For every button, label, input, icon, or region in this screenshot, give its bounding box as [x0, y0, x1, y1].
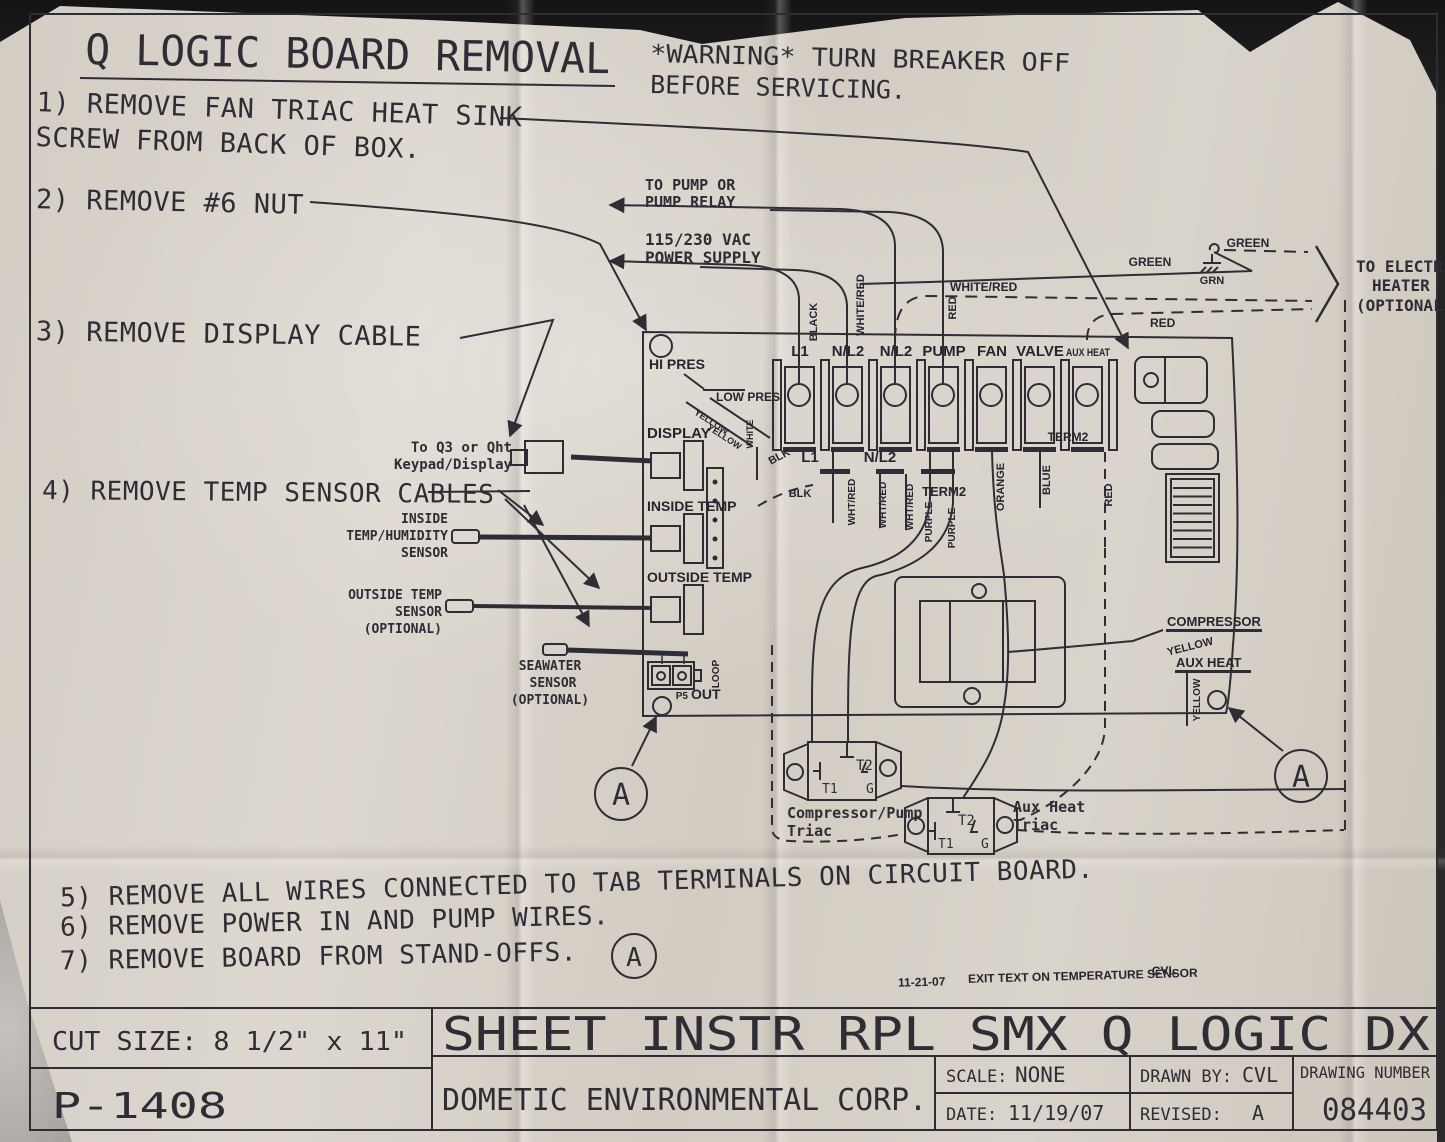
cut-size: CUT SIZE: 8 1/2" x 11" [52, 1027, 407, 1057]
photo-of-instruction-sheet: Q LOGIC BOARD REMOVAL *WARNING* TURN BRE… [0, 0, 1445, 1142]
heat-sink-components [1135, 357, 1219, 562]
revised-label: REVISED: [1140, 1105, 1222, 1125]
aux-heat-yellow-label: YELLOW [1192, 678, 1203, 721]
outside-sensor-cable [446, 600, 652, 612]
drawing-number-value: 084403 [1322, 1093, 1427, 1128]
note-date: 11-21-07 [898, 974, 946, 989]
whitered-wire-label: WHITE/RED [855, 274, 867, 336]
term2-label: TERM2 [1048, 430, 1089, 444]
revision-note: 11-21-07 EXIT TEXT ON TEMPERATURE SENSOR… [898, 963, 1199, 990]
out-label: OUT [691, 686, 721, 702]
step-4: 4) REMOVE TEMP SENSOR CABLES [42, 475, 495, 512]
outside-temp-label: OUTSIDE TEMP [647, 569, 752, 585]
outside-sensor-line3: (OPTIONAL) [364, 622, 442, 637]
step-3: 3) REMOVE DISPLAY CABLE [36, 315, 422, 355]
tab-terminal-labels: BLK L1 N/L2 BLK TERM2 WHT/RED WHT/RED WH… [767, 446, 1115, 548]
date-value: 11/19/07 [1008, 1101, 1104, 1125]
power-supply-line1: 115/230 VAC [645, 230, 751, 249]
whtred-label-1: WHT/RED [847, 479, 858, 526]
inside-temp-label: INSIDE TEMP [647, 498, 736, 514]
inside-sensor-line3: SENSOR [401, 546, 448, 561]
board-connectors [651, 441, 723, 634]
compressor-pump-triac [784, 716, 901, 800]
warning-line2: BEFORE SERVICING. [650, 70, 906, 105]
display-label: DISPLAY [647, 425, 711, 442]
tab-l1-label: L1 [801, 449, 819, 466]
aux-triac-t2: T2 [958, 813, 975, 829]
comp-triac-t1: T1 [822, 782, 838, 797]
seawater-sensor-line1: SEAWATER [519, 659, 582, 674]
electric-heater-line2: HEATER [1372, 276, 1430, 295]
aux-triac-g: G [981, 837, 989, 852]
white-label: WHITE [745, 420, 755, 449]
electric-heater-line3: (OPTIONAL) [1356, 296, 1445, 315]
black-wire-label: BLACK [808, 303, 820, 342]
callout-a-right [1229, 708, 1327, 802]
p5-label: P5 [676, 691, 689, 702]
callout-a-step7-letter: A [626, 943, 642, 973]
green-wire-label2: GREEN [1227, 236, 1270, 250]
company-name: DOMETIC ENVIRONMENTAL CORP. [442, 1083, 927, 1118]
note-initials: CVL [1152, 963, 1176, 978]
loop-label: LOOP [711, 660, 722, 689]
heater-chevron [1316, 246, 1338, 322]
tab-term2-label: TERM2 [922, 484, 966, 499]
header-pins [713, 480, 718, 561]
keypad-connector [511, 441, 652, 473]
drawn-by-value: CVL [1242, 1063, 1278, 1087]
seawater-sensor-line2: SENSOR [530, 676, 577, 691]
seawater-sensor-line3: (OPTIONAL) [511, 693, 589, 708]
drawn-by-label: DRAWN BY: [1140, 1067, 1232, 1087]
aux-triac-t1: T1 [938, 837, 954, 852]
comp-triac-g: G [866, 782, 874, 797]
keypad-label-line1: To Q3 or Qht [411, 440, 512, 456]
date-label: DATE: [946, 1105, 997, 1125]
terminal-labels: L1 N/L2 N/L2 PUMP FAN VALVE AUX HEAT TER… [791, 343, 1110, 444]
tab-nl2-label: N/L2 [864, 449, 897, 466]
page-title: Q LOGIC BOARD REMOVAL [85, 25, 611, 83]
red-heater-label: RED [1150, 316, 1176, 330]
connection-annotations: TO PUMP OR PUMP RELAY 115/230 VAC POWER … [645, 176, 1445, 315]
electric-heater-line1: TO ELECTRIC [1356, 257, 1445, 276]
red-wire-label: RED [947, 296, 959, 319]
part-number: P-1408 [52, 1086, 227, 1127]
blue-label: BLUE [1041, 465, 1053, 495]
board-wires [812, 452, 1344, 798]
revised-value: A [1252, 1101, 1264, 1125]
keypad-label-line2: Keypad/Display [394, 457, 513, 473]
sheet-title: SHEET INSTR RPL SMX Q LOGIC DX [442, 1007, 1430, 1061]
outside-sensor-line2: SENSOR [395, 605, 442, 620]
scale-label: SCALE: [946, 1067, 1007, 1087]
green-wire-label: GREEN [1129, 255, 1172, 269]
step-2: 2) REMOVE #6 NUT [36, 183, 305, 223]
aux-triac-label-line1: Aux Heat [1013, 798, 1085, 816]
comp-triac-t2: T2 [856, 758, 873, 774]
compressor-label: COMPRESSOR [1167, 614, 1262, 629]
terminal-label-auxheat: AUX HEAT [1066, 347, 1110, 359]
orange-label: ORANGE [995, 463, 1007, 511]
terminal-label-fan: FAN [977, 343, 1007, 360]
power-supply-line2: POWER SUPPLY [645, 248, 761, 267]
comp-triac-label-line2: Triac [787, 822, 832, 840]
callout-a-left-letter: A [612, 778, 630, 813]
inside-sensor-line1: INSIDE [401, 512, 448, 527]
outside-sensor-line1: OUTSIDE TEMP [348, 588, 442, 603]
inside-sensor-cable [452, 530, 652, 543]
comp-triac-label-line1: Compressor/Pump [787, 804, 922, 822]
wire-color-labels: BLACK WHITE/RED RED WHITE/RED RED GREEN … [808, 236, 1269, 341]
aux-triac-label-line2: Triac [1013, 816, 1058, 834]
aux-heat-label: AUX HEAT [1176, 655, 1242, 670]
p5-connector [648, 662, 701, 689]
compressor-underline [1166, 629, 1262, 632]
low-pres-label: LOW PRES [716, 390, 780, 404]
relay-component [895, 577, 1065, 707]
to-pump-line2: PUMP RELAY [645, 193, 735, 211]
grn-ground-label: GRN [1200, 275, 1225, 287]
inside-sensor-line2: TEMP/HUMIDITY [346, 529, 448, 544]
terminal-label-valve: VALVE [1016, 343, 1064, 360]
whitered-heater-label: WHITE/RED [950, 280, 1018, 294]
drawing-number-label: DRAWING NUMBER [1300, 1063, 1430, 1082]
tab-terminals [783, 447, 1104, 474]
scale-value: NONE [1015, 1063, 1066, 1087]
aux-heat-underline [1175, 670, 1251, 673]
callout-a-right-letter: A [1292, 760, 1310, 795]
hi-pres-label: HI PRES [649, 356, 705, 372]
standoffs [653, 691, 1226, 715]
board-dashed-wires [758, 452, 1344, 842]
to-pump-line1: TO PUMP OR [645, 176, 736, 194]
